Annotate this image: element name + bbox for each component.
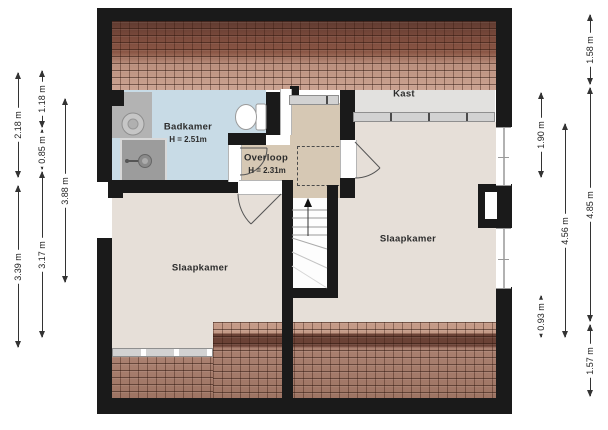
room-label-slaapkamer-right: Slaapkamer [380,234,436,244]
dimension-label: 2.18 m [14,108,24,142]
room-label-badkamer: Badkamer [164,122,212,132]
dimension-label: 3.39 m [14,250,24,284]
toilet-icon [236,104,267,130]
dimension-4.56-m: 4.56 m [561,123,570,338]
dimension-label: 4.56 m [561,214,571,248]
room-label-slaapkamer-left: Slaapkamer [172,263,228,273]
shower-faucet-icon [125,155,152,168]
dimension-3.17-m: 3.17 m [38,171,47,338]
floorplan-canvas: Badkamer H = 2.51m Overloop H = 2.31m Ka… [0,0,608,430]
dimension-label: 0.85 m [38,133,48,167]
dimension-1.90-m: 1.90 m [537,92,546,178]
stairs-direction-arrow [304,198,312,236]
door-swing-overloop-slaapkamer-right [355,142,380,178]
dimension-4.85-m: 4.85 m [586,87,595,322]
dimension-label: 3.88 m [61,174,71,208]
room-height-badkamer: H = 2.51m [169,136,207,144]
dimension-1.18-m: 1.18 m [38,70,47,128]
dimension-label: 4.85 m [586,188,596,222]
dimension-label: 1.57 m [586,344,596,378]
dimension-3.39-m: 3.39 m [14,185,23,348]
dimension-label: 0.93 m [537,300,547,334]
dimension-2.18-m: 2.18 m [14,72,23,178]
dimension-1.57-m: 1.57 m [586,324,595,397]
dimension-0.93-m: 0.93 m [537,295,546,338]
dimension-label: 1.58 m [586,33,596,67]
room-label-kast: Kast [393,89,415,99]
dimension-0.85-m: 0.85 m [38,129,47,170]
washbasin-icon [122,113,144,135]
room-height-overloop: H = 2.31m [248,167,286,175]
door-swing-overloop-slaapkamer-left [238,194,281,224]
dimension-label: 1.90 m [537,118,547,152]
dimension-label: 3.17 m [38,238,48,272]
room-label-overloop: Overloop [244,153,288,163]
dimension-1.58-m: 1.58 m [586,14,595,85]
plan-detail-svg [0,0,608,430]
dimension-3.88-m: 3.88 m [61,98,70,283]
stairs-icon [292,210,327,288]
dimension-label: 1.18 m [38,82,48,116]
